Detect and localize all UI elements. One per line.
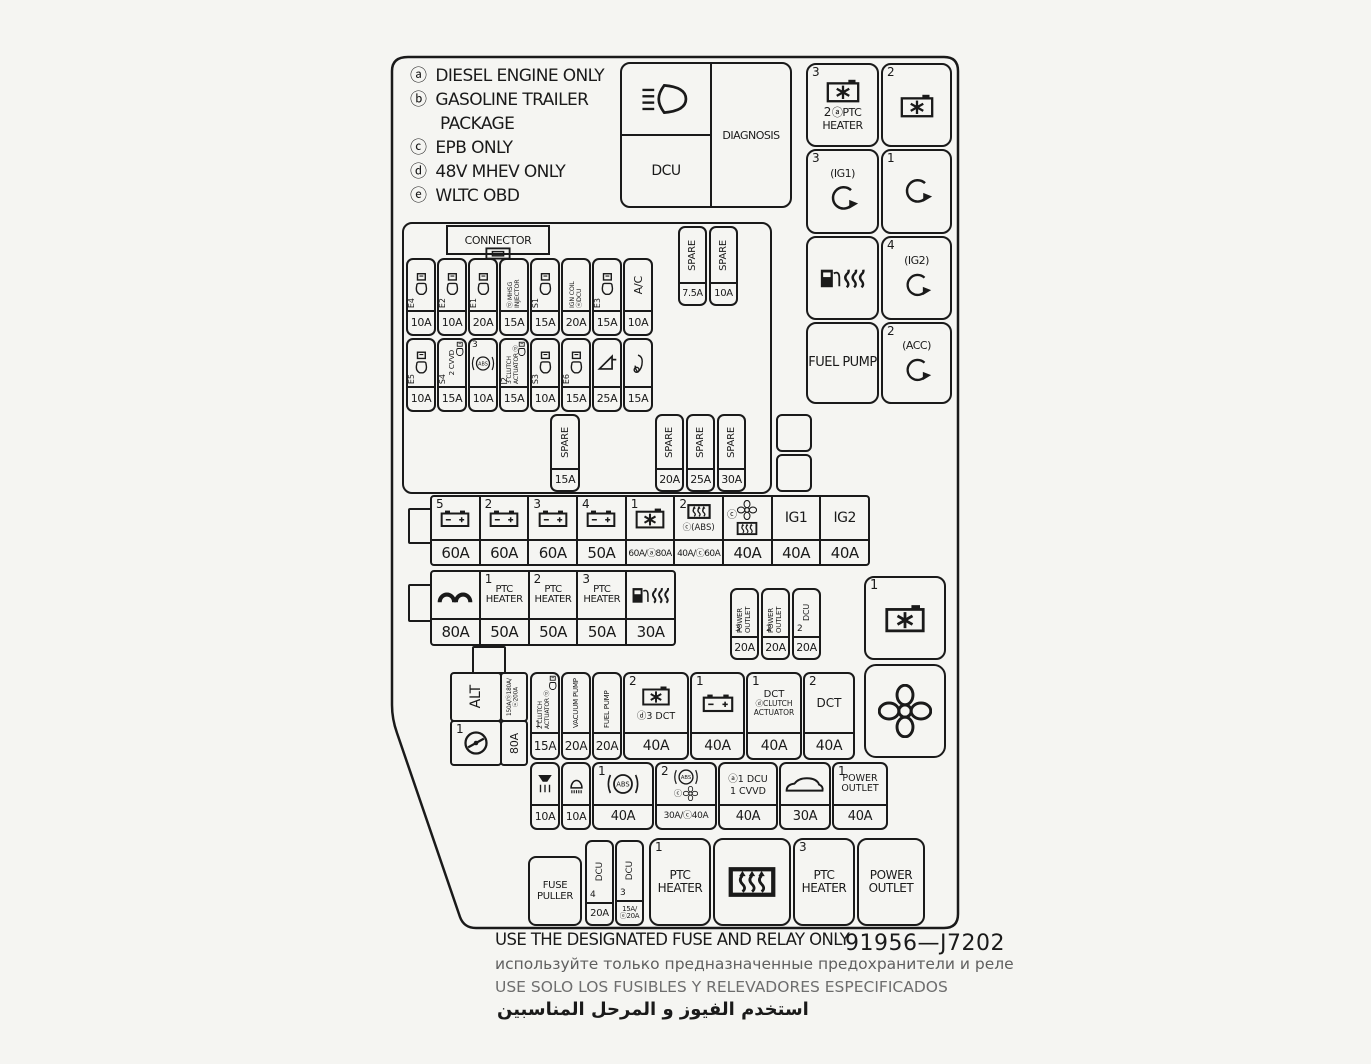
fuse-ac: A/C 10A bbox=[623, 258, 653, 336]
fuse-body: SPARE bbox=[680, 228, 705, 282]
fuse-label: PTC HEATER bbox=[533, 585, 573, 606]
fuse-body: 3PTC HEATER bbox=[578, 572, 625, 618]
amp-rating: 10A bbox=[532, 804, 558, 828]
fuse-number: 1 bbox=[535, 721, 541, 730]
fuse-body: 2 CVVD S4 bbox=[439, 340, 465, 386]
mdps-amp-strip: 80A bbox=[500, 720, 528, 766]
fuse-tag: I2 bbox=[501, 377, 509, 384]
legend-row: ⓒEPB ONLY bbox=[410, 136, 604, 160]
fuse-tag: E1 bbox=[470, 298, 478, 308]
fuse-label: SPARE bbox=[664, 427, 675, 458]
amp-rating: 15A bbox=[532, 732, 558, 758]
engine-fuse-box-diagram: ⓐDIESEL ENGINE ONLY ⓑGASOLINE TRAILER PA… bbox=[0, 0, 1371, 1064]
relay-label: (IG1) bbox=[808, 168, 877, 180]
fuse-spare: SPARE 10A bbox=[709, 226, 738, 306]
fuse-spare: SPARE 15A bbox=[550, 414, 580, 492]
horn-icon bbox=[596, 352, 618, 374]
defroster-icon bbox=[736, 521, 758, 536]
fuse-dcu-cvvd: ⓐ1 DCU 1 CVVD 40A bbox=[718, 762, 778, 830]
fuse-ig1: IG1 40A bbox=[771, 497, 820, 564]
fuse-mhsg-injector: ⓓ MHSG INJECTOR 15A bbox=[499, 258, 529, 336]
amp-rating: 15A bbox=[594, 310, 620, 334]
fuse-body: IG2 bbox=[821, 497, 868, 539]
injector-icon bbox=[414, 272, 428, 298]
fuse-number: 3 bbox=[472, 341, 478, 350]
amp-rating: 40A bbox=[834, 804, 886, 828]
fuse-number: 1 bbox=[752, 675, 760, 687]
fuse-body: DCU4 bbox=[587, 842, 612, 902]
amp-rating: 40A bbox=[720, 804, 776, 828]
fuse-body: IG1 bbox=[773, 497, 820, 539]
fuse-body: DCU3 bbox=[617, 842, 642, 900]
connector-tab bbox=[472, 646, 506, 674]
fuse-label: DCU bbox=[802, 604, 811, 621]
legend-key: ⓒ bbox=[410, 136, 426, 160]
fuse-puller: FUSE PULLER bbox=[528, 856, 582, 926]
relay-ptc-heater-1: 1 PTC HEATER bbox=[649, 838, 711, 926]
fuse-label: PTC HEATER bbox=[582, 585, 622, 606]
fuse-body: ⓐ1 DCU 1 CVVD bbox=[720, 764, 776, 804]
amp-rating: 50A bbox=[578, 618, 625, 644]
fuse-label: IG2 bbox=[834, 510, 856, 526]
amp-rating: 60A/ⓐ80A bbox=[627, 539, 674, 564]
fuse-body: 3 CLUTCH ACTUATOR ⓓ I2 bbox=[501, 340, 527, 386]
fuse-number: 1 bbox=[696, 675, 704, 687]
legend-key: ⓐ bbox=[410, 64, 426, 88]
circular-arrow-icon bbox=[827, 183, 859, 215]
relay-number: 1 bbox=[655, 841, 663, 853]
relay-acc: 2 (ACC) bbox=[881, 322, 952, 404]
legend-text: EPB ONLY bbox=[435, 136, 512, 160]
cooling-fan-box bbox=[864, 664, 946, 758]
fuse-body: ⓒ bbox=[724, 497, 771, 539]
fuse-label: SPARE bbox=[726, 427, 737, 458]
fuse-ptc-heater-2: 2PTC HEATER 50A bbox=[528, 572, 577, 644]
fuse-e1: E1 20A bbox=[468, 258, 498, 336]
fuse-mdps: 1 bbox=[450, 720, 502, 766]
amp-rating: 10A bbox=[532, 386, 558, 410]
footer-warning-ar: استخدم الفيوز و المرحل المناسبين bbox=[497, 999, 809, 1020]
radiator-fan-relay-icon bbox=[883, 603, 927, 633]
diagnosis-left-column: DCU bbox=[622, 64, 712, 206]
amp-rating: 30A/ⓒ40A bbox=[657, 804, 715, 828]
fuse-number: 3 bbox=[533, 498, 541, 510]
fuse-label: DCU bbox=[595, 862, 605, 881]
legend: ⓐDIESEL ENGINE ONLY ⓑGASOLINE TRAILER PA… bbox=[410, 64, 604, 208]
fuse-label: 2 CVVD bbox=[448, 350, 456, 375]
legend-text: WLTC OBD bbox=[435, 184, 519, 208]
fuse-dct-clutch-actuator: 1 DCT ⓓCLUTCH ACTUATOR 40A bbox=[746, 672, 802, 760]
amp-rating: 80A bbox=[432, 618, 479, 644]
lamp-icon bbox=[568, 772, 585, 796]
fuse-label: ⓓ3 DCT bbox=[637, 708, 675, 722]
fuse-body: SPARE bbox=[719, 416, 744, 468]
fuse-dcu-4: DCU4 20A bbox=[585, 840, 614, 926]
fuse-body bbox=[563, 764, 589, 804]
fuse-e3: E3 15A bbox=[592, 258, 622, 336]
fuse-alt: ALT bbox=[450, 672, 502, 722]
amp-rating: 20A bbox=[587, 902, 612, 924]
steering-circle-icon bbox=[462, 729, 490, 757]
amp-rating: 15A/ⓔ20A bbox=[617, 900, 642, 924]
fuse-body: E2 bbox=[439, 260, 465, 310]
amp-rating: 50A bbox=[481, 618, 528, 644]
fuse-abs-2: 2 ⓒ 30A/ⓒ40A bbox=[655, 762, 717, 830]
fuse-label: DCU bbox=[625, 861, 635, 880]
fuse-label: DCT bbox=[817, 696, 842, 710]
amp-rating: 150A/ⓓ180A/ⓔ200A bbox=[507, 676, 520, 718]
fuse-fan-defrost: ⓒ 40A bbox=[722, 497, 771, 564]
amp-rating: 15A bbox=[439, 386, 465, 410]
amp-rating: 15A bbox=[563, 386, 589, 410]
diagnosis-block: DCU DIAGNOSIS bbox=[620, 62, 792, 208]
amp-rating: 40A bbox=[724, 539, 771, 564]
fuse-cvvd: 2 CVVD S4 15A bbox=[437, 338, 467, 412]
fuse-power-outlet-1: 1POWER OUTLET 40A bbox=[832, 762, 888, 830]
fuse-body bbox=[594, 340, 620, 386]
relay-number: 3 bbox=[812, 66, 820, 78]
fuse-e6: E6 15A bbox=[561, 338, 591, 412]
amp-rating: 25A bbox=[688, 468, 713, 490]
fuse-spare: SPARE 25A bbox=[686, 414, 715, 492]
fuse-clutch-actuator-2: 2 CLUTCH ACTUATOR ⓓ 1 15A bbox=[530, 672, 560, 760]
relay-number: 3 bbox=[799, 841, 807, 853]
fuse-tag: S3 bbox=[532, 374, 540, 384]
radiator-fan-relay-icon bbox=[634, 507, 666, 529]
radiator-fan-relay-box: 1 bbox=[864, 576, 946, 660]
circular-arrow-icon bbox=[902, 271, 932, 301]
fuse-body: 2 ⓒ bbox=[657, 764, 715, 804]
headlight-cell bbox=[622, 64, 710, 136]
fuse-body: 2 CLUTCH ACTUATOR ⓓ 1 bbox=[532, 674, 558, 732]
amp-rating: 10A bbox=[408, 310, 434, 334]
fuse-body: 2DCT bbox=[805, 674, 853, 732]
injector-icon bbox=[538, 272, 552, 298]
fuse-number: 1 bbox=[838, 765, 846, 777]
fuse-body: FUEL PUMP bbox=[594, 674, 620, 732]
fuse-s3: S3 10A bbox=[530, 338, 560, 412]
amp-rating: 20A bbox=[470, 310, 496, 334]
injector-icon bbox=[600, 272, 614, 298]
fuse-number: 1 bbox=[456, 723, 464, 735]
high-beam-icon bbox=[637, 79, 695, 119]
rear-defroster-icon bbox=[728, 865, 776, 899]
high-amp-fuse-row: 5 60A 2 60A 3 60A 4 50A 1 60A/ⓐ80A 2ⓒ(AB… bbox=[430, 495, 870, 566]
fuse-body: DCU2 bbox=[794, 590, 819, 636]
amp-rating: 40A bbox=[773, 539, 820, 564]
fuse-label: SPARE bbox=[560, 427, 571, 458]
circular-arrow-icon bbox=[901, 176, 933, 208]
fuse-tag: E2 bbox=[439, 298, 447, 308]
part-number: 91956—J7202 bbox=[845, 931, 1005, 956]
amp-rating: 40A bbox=[594, 804, 652, 828]
radiator-fan-relay-icon bbox=[825, 78, 861, 103]
fuse-body: E6 bbox=[563, 340, 589, 386]
fuse-blower: 1 60A/ⓐ80A bbox=[625, 497, 674, 564]
fuse-number: 2 bbox=[485, 498, 493, 510]
abs-icon bbox=[470, 355, 496, 372]
fuse-glow-plug: 80A bbox=[432, 572, 479, 644]
amp-rating: 20A bbox=[563, 310, 589, 334]
battery-icon bbox=[538, 509, 568, 528]
fuse-body bbox=[627, 572, 674, 618]
fuse-ig2: IG2 40A bbox=[819, 497, 868, 564]
amp-rating: 60A bbox=[432, 539, 479, 564]
fuse-body: SPARE bbox=[552, 416, 578, 468]
fuse-e4: E4 10A bbox=[406, 258, 436, 336]
amp-rating: 30A bbox=[781, 804, 829, 828]
amp-rating: 20A bbox=[732, 636, 757, 658]
circular-arrow-icon bbox=[902, 356, 932, 386]
fuse-body: S3 bbox=[532, 340, 558, 386]
fuse-body: VACUUM PUMP bbox=[563, 674, 589, 732]
fuse-vehicle: 30A bbox=[779, 762, 831, 830]
fuse-number: 2 bbox=[766, 625, 772, 634]
relay-ptc-heater-3: 3 PTC HEATER bbox=[793, 838, 855, 926]
cooling-fan-icon bbox=[878, 684, 932, 738]
amp-rating: 60A bbox=[529, 539, 576, 564]
relay-power-outlet: POWER OUTLET bbox=[857, 838, 925, 926]
fuse-number: 3 bbox=[582, 573, 590, 585]
relay-number: 3 bbox=[812, 152, 820, 164]
fuel-pump-heater-icon bbox=[631, 585, 671, 605]
fuse-number: 1 bbox=[485, 573, 493, 585]
amp-rating: 40A bbox=[625, 732, 687, 758]
fuse-number: 3 bbox=[735, 625, 741, 634]
injector-icon bbox=[569, 351, 583, 376]
fuse-label: SPARE bbox=[718, 240, 729, 271]
fuse-tag: S1 bbox=[532, 298, 540, 308]
fuse-e5: E5 10A bbox=[406, 338, 436, 412]
dcu-label: DCU bbox=[651, 163, 680, 179]
battery-icon bbox=[440, 509, 470, 528]
footer-warning-en: USE THE DESIGNATED FUSE AND RELAY ONLY bbox=[495, 930, 849, 949]
fuse-battery-2: 2 60A bbox=[479, 497, 528, 564]
relay-ptc-heater: 3 2ⓐPTC HEATER bbox=[806, 63, 879, 147]
amp-rating: 40A bbox=[821, 539, 868, 564]
alt-rating-strip: 150A/ⓓ180A/ⓔ200A bbox=[500, 672, 528, 722]
amp-rating: 20A bbox=[763, 636, 788, 658]
fuse-body: E3 bbox=[594, 260, 620, 310]
diagnosis-label: DIAGNOSIS bbox=[722, 129, 779, 142]
amp-rating: 10A bbox=[470, 386, 496, 410]
abs-icon bbox=[672, 768, 700, 786]
relay-number: 2 bbox=[887, 66, 895, 78]
fuse-power-outlet-3: POWER OUTLET3 20A bbox=[730, 588, 759, 660]
amp-rating: 80A bbox=[508, 733, 521, 754]
connector-tab bbox=[408, 584, 432, 622]
fuse-label: IG1 bbox=[785, 510, 807, 526]
footer-warning-ru: используйте только предназначенные предо… bbox=[495, 955, 1014, 973]
fuse-battery-3: 3 60A bbox=[527, 497, 576, 564]
amp-rating: 40A/ⓒ60A bbox=[675, 539, 722, 564]
fuse-body: S1 bbox=[532, 260, 558, 310]
fuse-dct-2: 2DCT 40A bbox=[803, 672, 855, 760]
fuse-number: 3 bbox=[620, 889, 626, 898]
fuel-pump-heater-icon bbox=[819, 265, 867, 291]
amp-rating: 15A bbox=[501, 310, 527, 334]
fuse-body: 2 ⓓ3 DCT bbox=[625, 674, 687, 732]
fuse-spare: SPARE 20A bbox=[655, 414, 684, 492]
fuse-label: ⓓ MHSG INJECTOR bbox=[507, 262, 521, 308]
diagnosis-cell: DIAGNOSIS bbox=[712, 64, 790, 206]
fuse-ptc-heater-1: 1PTC HEATER 50A bbox=[479, 572, 528, 644]
fuse-vacuum-pump: VACUUM PUMP 20A bbox=[561, 672, 591, 760]
vehicle-icon bbox=[784, 774, 826, 795]
fuse-body: 5 bbox=[432, 497, 479, 539]
fuse-body: E5 bbox=[408, 340, 434, 386]
empty-slot bbox=[776, 414, 812, 452]
amp-rating: 40A bbox=[748, 732, 800, 758]
amp-rating: 15A bbox=[552, 468, 578, 490]
fuse-number: 2 bbox=[679, 498, 687, 510]
amp-rating: 60A bbox=[481, 539, 528, 564]
fuse-ign-coil-dcu: IGN COIL ⓐDCU 20A bbox=[561, 258, 591, 336]
dcu-cell: DCU bbox=[622, 136, 710, 206]
fuse-fuel-pump: FUEL PUMP 20A bbox=[592, 672, 622, 760]
amp-rating: 40A bbox=[692, 732, 743, 758]
legend-row: ⓔWLTC OBD bbox=[410, 184, 604, 208]
fuse-washer-heater: 10A bbox=[530, 762, 560, 830]
battery-icon bbox=[489, 509, 519, 528]
fuse-spare: SPARE 7.5A bbox=[678, 226, 707, 306]
fuse-dcu-3: DCU3 15A/ⓔ20A bbox=[615, 840, 644, 926]
relay-rear-defroster bbox=[713, 838, 791, 926]
fuse-tag: E4 bbox=[408, 298, 416, 308]
fuse-tag: E3 bbox=[594, 298, 602, 308]
footer-warning-es: USE SOLO LOS FUSIBLES Y RELEVADORES ESPE… bbox=[495, 978, 948, 996]
relay-ig2: 4 (IG2) bbox=[881, 236, 952, 320]
fuse-label: ⓓCLUTCH ACTUATOR bbox=[751, 700, 797, 717]
fuse-fuel-pump-heater: 30A bbox=[625, 572, 674, 644]
fuse-body: 2 bbox=[481, 497, 528, 539]
cooling-fan-icon bbox=[737, 500, 757, 520]
relay-number: 1 bbox=[870, 579, 878, 592]
fuse-body: SPARE bbox=[657, 416, 682, 468]
fuse-label: ⓒ(ABS) bbox=[683, 521, 715, 533]
fuse-number: 4 bbox=[582, 498, 590, 510]
fuse-body: ⓓ MHSG INJECTOR bbox=[501, 260, 527, 310]
fuse-body bbox=[532, 764, 558, 804]
fuse-label: 3 CLUTCH ACTUATOR ⓓ bbox=[507, 342, 521, 384]
fuse-label: SPARE bbox=[687, 240, 698, 271]
fuse-label: SPARE bbox=[695, 427, 706, 458]
legend-key: ⓑ bbox=[410, 88, 426, 112]
fuse-battery-4: 4 50A bbox=[576, 497, 625, 564]
fuse-clutch-actuator-3: 3 CLUTCH ACTUATOR ⓓ I2 15A bbox=[499, 338, 529, 412]
fuse-body: 3 bbox=[529, 497, 576, 539]
fuse-number: 2 bbox=[534, 573, 542, 585]
defroster-icon bbox=[687, 503, 711, 520]
relay-number: 2 bbox=[824, 105, 831, 119]
fuse-number: 4 bbox=[590, 891, 596, 900]
amp-rating: 20A bbox=[563, 732, 589, 758]
fuse-body: E4 bbox=[408, 260, 434, 310]
fuse-tag: S4 bbox=[439, 374, 447, 384]
fuse-body: 4 bbox=[578, 497, 625, 539]
fuse-number: 2 bbox=[809, 675, 817, 687]
relay-label: POWER OUTLET bbox=[863, 869, 919, 895]
relay-label: 2ⓐPTC HEATER bbox=[808, 106, 877, 131]
amp-rating: 15A bbox=[501, 386, 527, 410]
cooling-fan-icon bbox=[683, 786, 698, 801]
fuse-abs-3: 3 10A bbox=[468, 338, 498, 412]
fuse-body: IGN COIL ⓐDCU bbox=[563, 260, 589, 310]
relay-label: PTC HEATER bbox=[654, 869, 706, 895]
legend-text: DIESEL ENGINE ONLY bbox=[435, 64, 604, 88]
fuse-body: POWER OUTLET3 bbox=[732, 590, 757, 636]
relay-fan-2: 2 bbox=[881, 63, 952, 147]
connector-label: CONNECTOR bbox=[465, 234, 532, 247]
fuse-body: 1 DCT ⓓCLUTCH ACTUATOR bbox=[748, 674, 800, 732]
fuse-label-row: ⓒ bbox=[674, 786, 698, 801]
fuse-body: 1PTC HEATER bbox=[481, 572, 528, 618]
fuse-body: 1 bbox=[627, 497, 674, 539]
fuse-s1: S1 15A bbox=[530, 258, 560, 336]
legend-key: ⓓ bbox=[410, 160, 426, 184]
amp-rating: 15A bbox=[532, 310, 558, 334]
fuse-lamp: 10A bbox=[561, 762, 591, 830]
legend-row: ⓐDIESEL ENGINE ONLY bbox=[410, 64, 604, 88]
fuse-label: ALT bbox=[468, 685, 484, 708]
fuse-number: 2 bbox=[797, 625, 803, 634]
amp-rating: 30A bbox=[627, 618, 674, 644]
fuse-body: 1POWER OUTLET bbox=[834, 764, 886, 804]
fuse-label: A/C bbox=[632, 276, 645, 294]
fuse-tag: E5 bbox=[408, 374, 416, 384]
relay-label: (ACC) bbox=[883, 340, 950, 352]
radiator-fan-relay-icon bbox=[641, 685, 671, 706]
connector-tab bbox=[408, 508, 432, 544]
fuse-label: 1 CVVD bbox=[730, 786, 766, 797]
amp-rating: 15A bbox=[625, 386, 651, 410]
legend-row: ⓑGASOLINE TRAILER bbox=[410, 88, 604, 112]
radiator-fan-relay-icon bbox=[899, 93, 935, 118]
relay-number: 1 bbox=[887, 152, 895, 164]
relay-label: (IG2) bbox=[883, 255, 950, 267]
fuse-battery-5: 5 60A bbox=[432, 497, 479, 564]
fuse-e2: E2 10A bbox=[437, 258, 467, 336]
fuse-puller-label: FUSE PULLER bbox=[533, 880, 577, 903]
amp-rating: 7.5A bbox=[680, 282, 705, 304]
fuse-number: 2 bbox=[629, 675, 637, 687]
injector-icon bbox=[414, 351, 428, 376]
fuse-body: 3 bbox=[470, 340, 496, 386]
amp-rating: 10A bbox=[439, 310, 465, 334]
legend-text: 48V MHEV ONLY bbox=[435, 160, 565, 184]
fuse-power-outlet-2: POWER OUTLET2 20A bbox=[761, 588, 790, 660]
battery-icon bbox=[586, 509, 616, 528]
empty-slot bbox=[776, 454, 812, 492]
injector-icon bbox=[538, 351, 552, 376]
fuse-number: 5 bbox=[436, 498, 444, 510]
amp-rating: 20A bbox=[657, 468, 682, 490]
washer-nozzle-heater-icon bbox=[536, 772, 554, 796]
fuse-body: POWER OUTLET2 bbox=[763, 590, 788, 636]
fuse-abs-1: 1 40A bbox=[592, 762, 654, 830]
fuse-body: A/C bbox=[625, 260, 651, 310]
fuse-number: 2 bbox=[661, 765, 669, 777]
amp-rating: 25A bbox=[594, 386, 620, 410]
fuse-label: FUEL PUMP bbox=[603, 678, 611, 728]
fuse-label: IGN COIL ⓐDCU bbox=[569, 262, 583, 308]
relay-1: 1 bbox=[881, 149, 952, 234]
fuse-battery-1: 1 40A bbox=[690, 672, 745, 760]
fuse-ptc-heater-3: 3PTC HEATER 50A bbox=[576, 572, 625, 644]
abs-icon bbox=[605, 772, 641, 796]
fuse-body: 1 bbox=[594, 764, 652, 804]
fuse-horn: 25A bbox=[592, 338, 622, 412]
